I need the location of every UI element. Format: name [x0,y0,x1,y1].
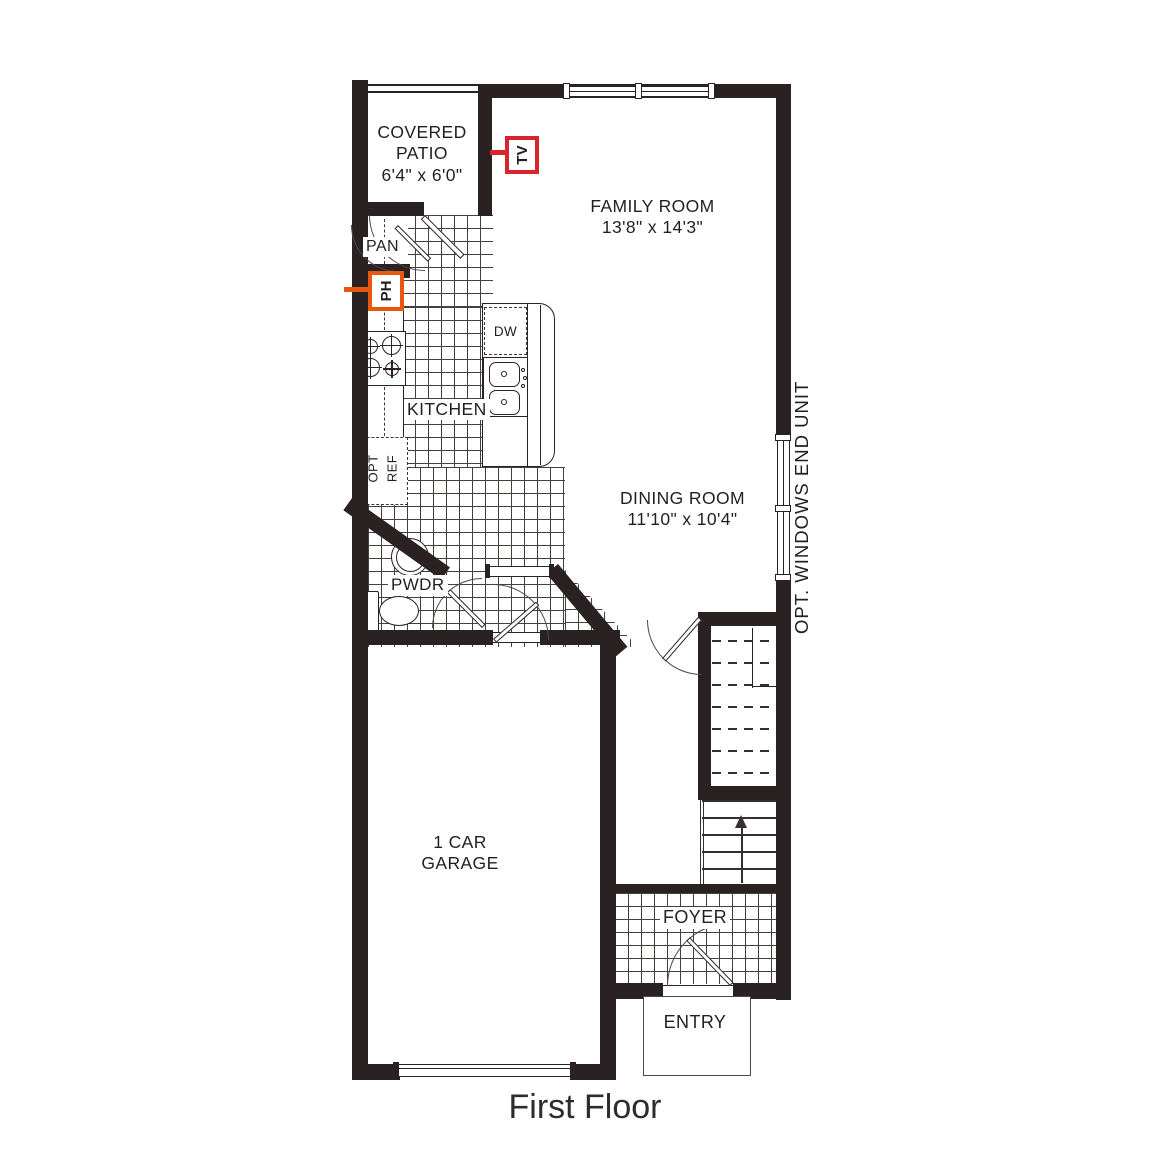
garage-door [398,1064,572,1077]
room-label-foyer: FOYER [660,907,730,929]
ph-annotation: PH [368,271,404,311]
dishwasher-label: DW [484,324,527,340]
opt-ref-label: REF [385,447,398,491]
garage-door-cap [393,1062,399,1080]
covered-patio-name: PATIO [352,143,492,164]
room-label-pantry: PAN [363,237,402,257]
window-mullion [775,434,791,441]
faucet-dot [521,368,525,372]
stairs-overhead-tread [712,772,775,774]
page-title: First Floor [420,1087,750,1128]
room-label-dining-room: DINING ROOM 11'10" x 10'4" [570,488,795,531]
stair-up-arrow-head [735,815,747,828]
stair-stringer [700,800,704,884]
stairs-overhead-tread [712,750,775,752]
garage-door-line [399,1068,570,1069]
wall [776,578,791,1000]
stove-burner-icon [382,336,401,355]
faucet-dot [521,384,525,388]
wall [776,84,791,437]
wall [570,1064,616,1080]
counter-dashed-edge [384,387,385,436]
room-label-family-room: FAMILY ROOM 13'8" x 14'3" [540,196,765,239]
stairs-overhead-tread [712,706,775,708]
covered-patio-dims: 6'4" x 6'0" [352,165,492,186]
stairs-overhead-tread [712,640,775,642]
closet-divider-line [752,686,776,687]
kitchen-tile-floor [402,307,482,467]
stair-tread [702,851,776,853]
room-label-entry: ENTRY [655,1012,735,1034]
family-room-name: FAMILY ROOM [540,196,765,217]
tv-label: TV [507,142,537,168]
opening-cap [485,564,490,578]
family-room-dims: 13'8" x 14'3" [540,217,765,238]
room-label-kitchen: KITCHEN [404,399,490,420]
dining-room-name: DINING ROOM [570,488,795,509]
stair-tread [702,834,776,836]
ph-label: PH [370,277,402,305]
stair-tread [702,868,776,870]
entry-stoop [643,996,751,1076]
stair-up-arrow [741,827,743,883]
faucet-dot [523,376,527,380]
wall [698,786,776,800]
ph-connector [344,287,370,292]
sink-drain [501,399,507,405]
window-mullion [775,574,791,581]
wall [352,630,493,645]
sink-drain [501,371,507,377]
room-label-covered-patio: COVERED PATIO 6'4" x 6'0" [352,122,492,186]
garage-door-cap [570,1062,576,1080]
stairs-overhead-tread [712,662,775,664]
window-mullion [635,83,642,99]
stair-base-edge [612,884,791,893]
stair-tread [702,800,776,802]
stove-burner-icon [385,362,399,376]
stairs-overhead-tread [712,728,775,730]
toilet-bowl [379,596,419,626]
opt-windows-note: OPT. WINDOWS END UNIT [791,394,811,634]
patio-screen-edge [368,84,478,93]
garage-name: 1 CAR [395,832,525,853]
closet-divider-line [752,628,753,688]
wall [352,202,424,216]
wall [600,630,616,1080]
opening-cap [549,564,554,578]
room-label-powder: PWDR [388,575,448,596]
garage-name: GARAGE [395,853,525,874]
floor-plan: OPT REF DW [0,0,1150,1170]
hall-opening-header [488,566,550,577]
room-label-garage: 1 CAR GARAGE [395,832,525,875]
window-mullion [563,83,570,99]
dining-room-dims: 11'10" x 10'4" [570,509,795,530]
covered-patio-name: COVERED [352,122,492,143]
tv-annotation: TV [505,136,539,174]
window-mullion [708,83,715,99]
bar-inner-line [540,305,541,465]
